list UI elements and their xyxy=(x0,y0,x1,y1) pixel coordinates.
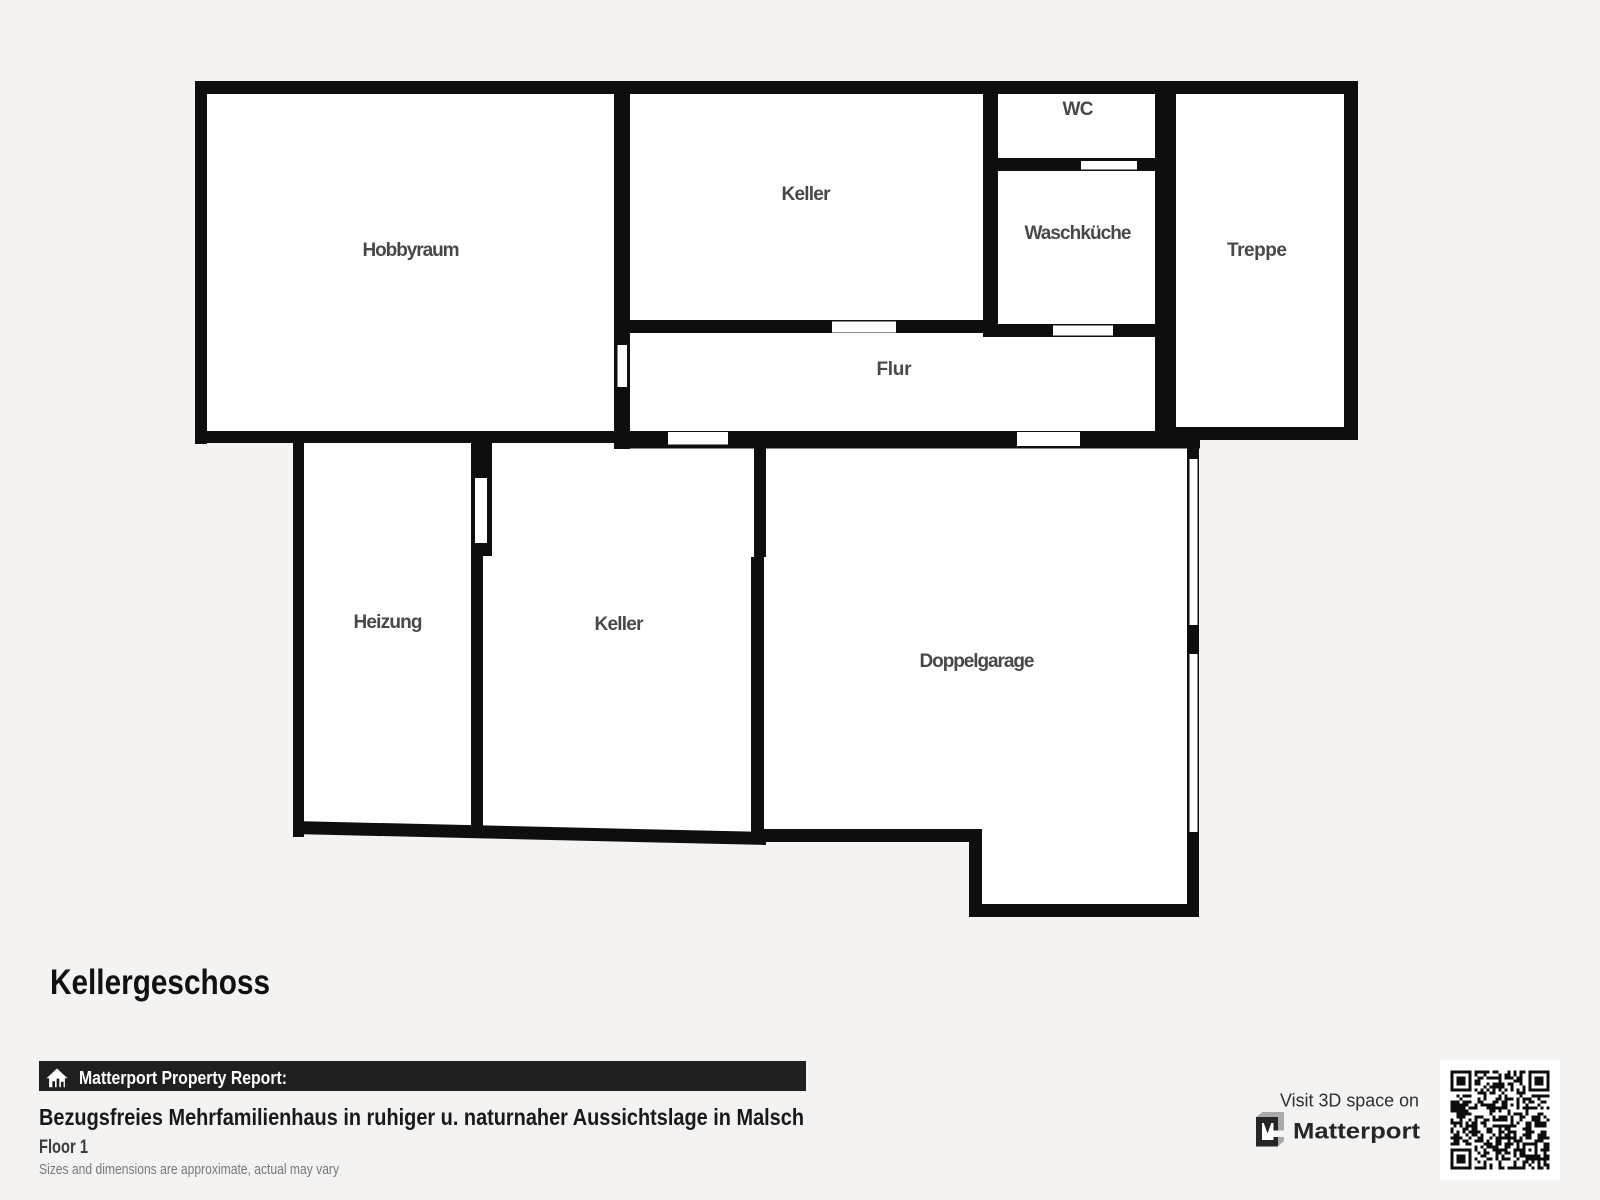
svg-text:Floor 1: Floor 1 xyxy=(39,1137,88,1158)
svg-text:Sizes and dimensions are appro: Sizes and dimensions are approximate, ac… xyxy=(39,1161,339,1178)
svg-text:Treppe: Treppe xyxy=(1227,240,1287,261)
svg-text:Kellergeschoss: Kellergeschoss xyxy=(50,963,270,1002)
svg-text:Bezugsfreies Mehrfamilienhaus: Bezugsfreies Mehrfamilienhaus in ruhiger… xyxy=(39,1104,804,1130)
svg-text:Keller: Keller xyxy=(782,184,832,205)
svg-text:Hobbyraum: Hobbyraum xyxy=(363,240,460,261)
svg-text:WC: WC xyxy=(1063,99,1094,120)
svg-text:Heizung: Heizung xyxy=(354,612,423,633)
svg-text:Matterport: Matterport xyxy=(1293,1119,1421,1144)
svg-text:Visit 3D space on: Visit 3D space on xyxy=(1280,1091,1419,1111)
svg-text:Keller: Keller xyxy=(595,614,645,635)
svg-text:Flur: Flur xyxy=(877,359,913,380)
svg-text:Matterport Property Report:: Matterport Property Report: xyxy=(79,1068,287,1088)
svg-text:Doppelgarage: Doppelgarage xyxy=(920,651,1035,672)
svg-text:Waschküche: Waschküche xyxy=(1025,223,1132,244)
